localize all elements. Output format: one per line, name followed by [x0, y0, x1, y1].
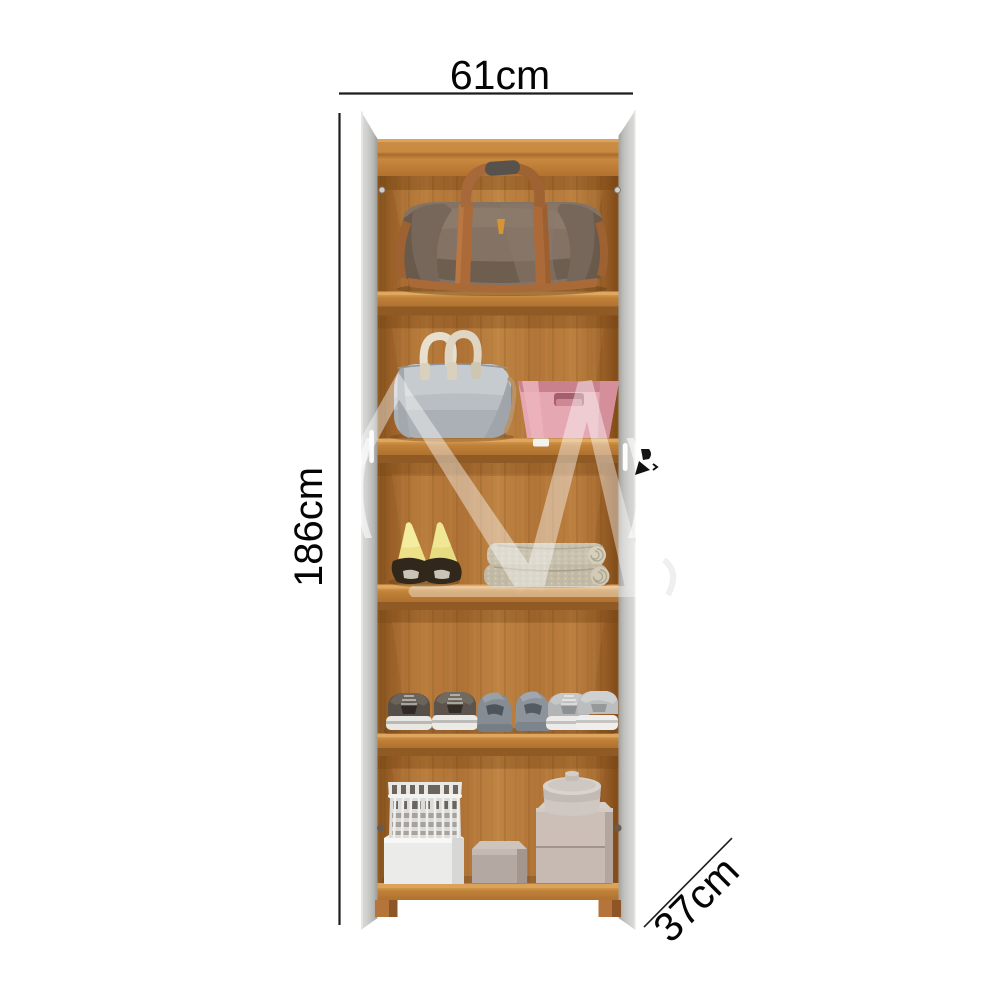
svg-text:61cm: 61cm [450, 52, 550, 98]
svg-text:186cm: 186cm [287, 467, 331, 587]
